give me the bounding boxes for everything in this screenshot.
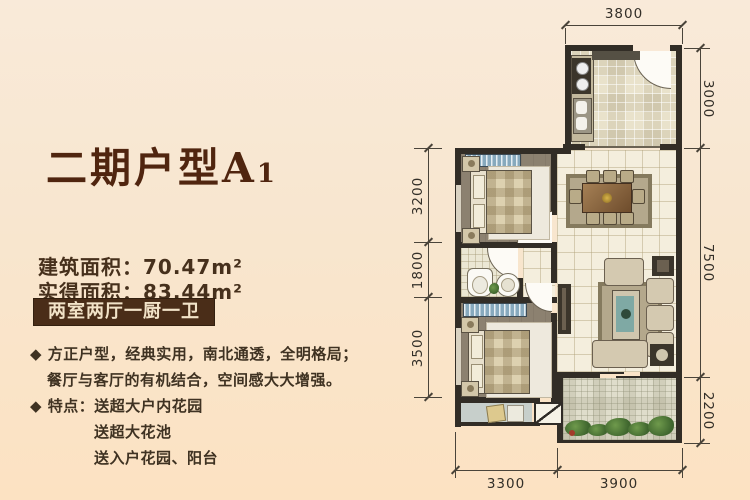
pillow xyxy=(473,175,485,199)
nightstand xyxy=(462,156,480,172)
dining-chair xyxy=(620,170,634,183)
side-table-top xyxy=(657,260,669,272)
dining-chair xyxy=(632,189,645,204)
bathroom-sink xyxy=(496,273,520,297)
side-table xyxy=(652,256,674,276)
dim-label-right: 7500 xyxy=(700,233,716,293)
dim-line-bottom xyxy=(455,470,682,471)
dining-chair xyxy=(586,212,600,225)
armchair xyxy=(604,258,644,286)
feature-line: ◆ 特点：送超大户内花园 xyxy=(30,393,370,419)
dining-chair xyxy=(620,212,634,225)
floorplan-brochure: 二期户型A1 建筑面积：70.47m² 实得面积：83.44m² 两室两厅一厨一… xyxy=(0,0,750,500)
wall xyxy=(551,247,557,283)
dining-chair xyxy=(603,170,617,183)
balcony-plant xyxy=(648,416,674,436)
nightstand xyxy=(461,317,479,333)
burner xyxy=(576,62,589,75)
burner xyxy=(576,78,589,91)
feature-list: ◆ 方正户型，经典实用，南北通透，全明格局； 餐厅与客厅的有机结合，空间感大大增… xyxy=(30,341,370,471)
table-plant xyxy=(621,309,631,319)
wall xyxy=(551,154,557,215)
feature-line: 餐厅与客厅的有机结合，空间感大大增强。 xyxy=(47,367,370,393)
bed1-blanket xyxy=(486,170,532,234)
sofa-cushion xyxy=(646,305,674,331)
dim-extension xyxy=(682,28,683,44)
dining-chair xyxy=(569,189,582,204)
dim-label-bottom: 3900 xyxy=(585,476,653,492)
title-main: 二期户型A xyxy=(46,144,257,192)
loveseat xyxy=(592,340,648,368)
balcony-flower xyxy=(569,430,575,436)
nightstand xyxy=(461,381,479,397)
bedroom2-window xyxy=(463,303,527,317)
dim-label-left: 1800 xyxy=(410,240,426,300)
flower-bed-item xyxy=(507,405,524,422)
dim-label-top: 3800 xyxy=(590,6,658,22)
sliding-door xyxy=(616,376,642,378)
bathroom-plant xyxy=(489,283,499,294)
feature-line: 送超大花池 xyxy=(94,419,370,445)
nightstand xyxy=(462,228,480,244)
stove xyxy=(572,58,591,94)
kitchen-sink xyxy=(573,98,592,134)
sink-basin xyxy=(576,101,587,114)
tv xyxy=(562,288,566,330)
page-title: 二期户型A1 xyxy=(46,134,278,194)
wall xyxy=(660,144,676,150)
toilet-bowl xyxy=(472,276,488,294)
dim-label-left: 3500 xyxy=(410,318,426,378)
sink-basin xyxy=(576,117,587,130)
pillow xyxy=(473,204,485,228)
dim-label-left: 3200 xyxy=(410,166,426,226)
unit-layout-badge: 两室两厅一厨一卫 xyxy=(33,298,215,326)
dim-extension xyxy=(565,28,566,44)
feature-line: 送入户花园、阳台 xyxy=(94,445,370,471)
flower-bed-item xyxy=(486,404,506,423)
sink-bowl xyxy=(501,278,515,292)
wall xyxy=(455,422,540,426)
toilet xyxy=(467,268,493,297)
wall xyxy=(676,45,682,443)
sliding-door xyxy=(598,372,624,374)
kitchen-cabinet xyxy=(592,51,640,60)
wall xyxy=(557,440,682,443)
dim-label-bottom: 3300 xyxy=(472,476,540,492)
table-centerpiece xyxy=(602,193,612,203)
bedroom1-side-window xyxy=(456,185,461,232)
title-sub: 1 xyxy=(257,159,278,189)
feature-line: ◆ 方正户型，经典实用，南北通透，全明格局； xyxy=(30,341,370,367)
tv-cabinet xyxy=(558,284,571,334)
wall xyxy=(640,372,682,378)
side-table-top xyxy=(656,349,668,361)
kitchen-opening-line xyxy=(585,146,660,148)
wall xyxy=(557,372,600,378)
balcony-plant xyxy=(605,418,631,436)
balcony-plant xyxy=(628,422,650,436)
coffee-table xyxy=(612,290,640,340)
dining-chair xyxy=(603,212,617,225)
dim-line-top xyxy=(565,25,682,26)
bedroom2-side-window xyxy=(456,328,461,385)
dim-line-left xyxy=(428,148,429,397)
sofa-cushion xyxy=(646,278,674,304)
side-table xyxy=(650,344,674,366)
dim-label-right: 2200 xyxy=(700,381,716,441)
dim-extension xyxy=(455,432,456,466)
dining-table xyxy=(582,183,632,213)
bed2-blanket xyxy=(484,330,530,394)
actual-area-unit: m² xyxy=(211,280,243,304)
shaft-symbol xyxy=(534,402,563,425)
dim-label-right: 3000 xyxy=(700,69,716,129)
pillow xyxy=(471,335,483,359)
dining-chair xyxy=(586,170,600,183)
